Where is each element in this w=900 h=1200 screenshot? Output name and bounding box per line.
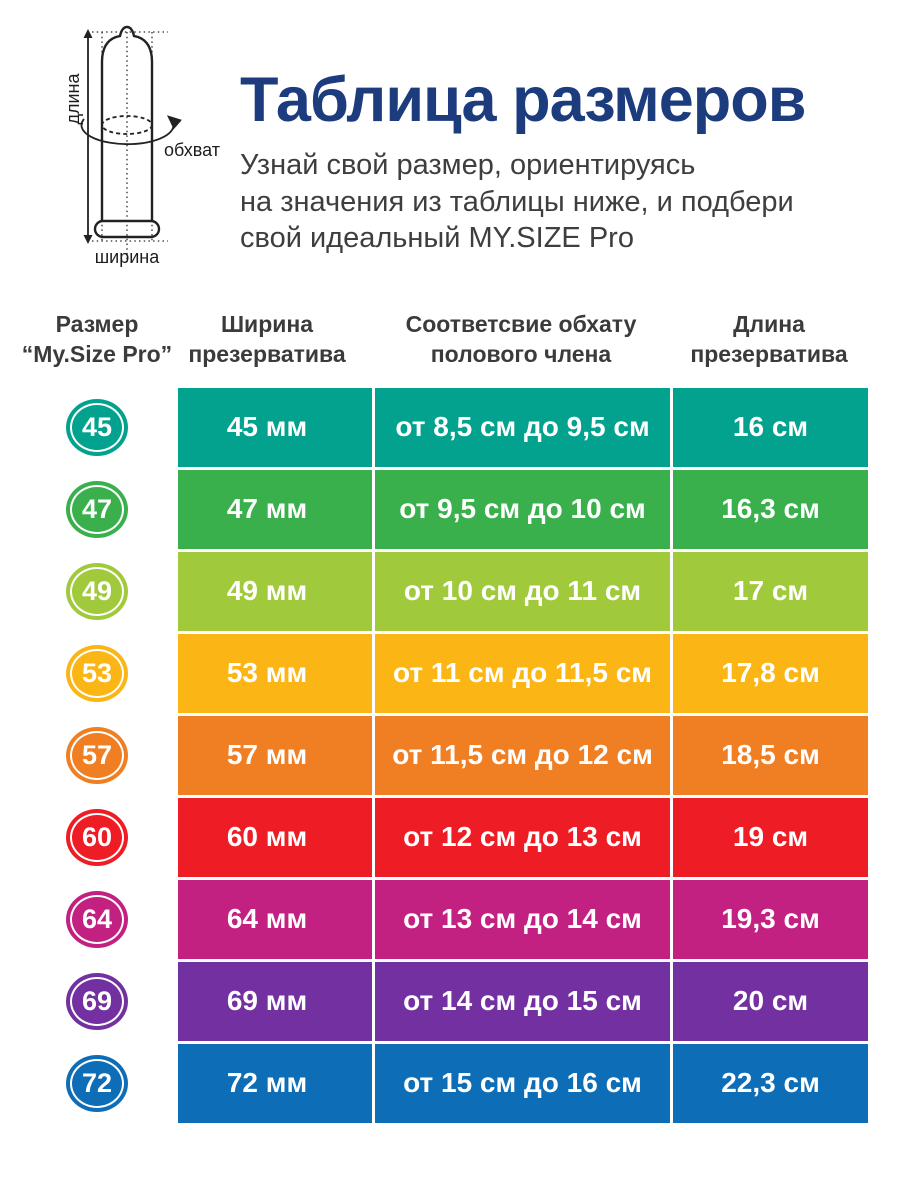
table-row: 53 53 мм от 11 см до 11,5 см 17,8 см	[0, 634, 868, 713]
width-cell: 60 мм	[162, 798, 372, 877]
length-cell: 19,3 см	[670, 880, 868, 959]
girth-cell: от 10 см до 11 см	[372, 552, 670, 631]
width-cell: 49 мм	[162, 552, 372, 631]
size-badge: 69	[66, 973, 128, 1030]
girth-cell: от 15 см до 16 см	[372, 1044, 670, 1123]
table-row: 45 45 мм от 8,5 см до 9,5 см 16 см	[0, 388, 868, 467]
girth-cell: от 9,5 см до 10 см	[372, 470, 670, 549]
column-header-width: Ширина презерватива	[162, 310, 372, 370]
table-row: 60 60 мм от 12 см до 13 см 19 см	[0, 798, 868, 877]
column-header-size: Размер “My.Size Pro”	[16, 310, 178, 370]
width-label: ширина	[95, 247, 161, 267]
length-cell: 18,5 см	[670, 716, 868, 795]
table-row: 69 69 мм от 14 см до 15 см 20 см	[0, 962, 868, 1041]
size-table: Размер “My.Size Pro” Ширина презерватива…	[0, 310, 868, 1126]
girth-cell: от 13 см до 14 см	[372, 880, 670, 959]
girth-cell: от 14 см до 15 см	[372, 962, 670, 1041]
girth-cell: от 12 см до 13 см	[372, 798, 670, 877]
girth-cell: от 8,5 см до 9,5 см	[372, 388, 670, 467]
length-cell: 17 см	[670, 552, 868, 631]
width-cell: 53 мм	[162, 634, 372, 713]
page-title: Таблица размеров	[240, 64, 805, 136]
size-badge: 72	[66, 1055, 128, 1112]
infographic-page: { "hero": { "title": "Таблица размеров",…	[0, 0, 900, 1200]
size-badge: 47	[66, 481, 128, 538]
table-row: 49 49 мм от 10 см до 11 см 17 см	[0, 552, 868, 631]
length-cell: 19 см	[670, 798, 868, 877]
subtitle-line-3: свой идеальный MY.SIZE Pro	[240, 220, 794, 257]
table-row: 57 57 мм от 11,5 см до 12 см 18,5 см	[0, 716, 868, 795]
girth-arrow	[81, 116, 173, 144]
condom-diagram-svg: длина обхват ширина	[52, 22, 237, 282]
girth-cell: от 11,5 см до 12 см	[372, 716, 670, 795]
width-cell: 64 мм	[162, 880, 372, 959]
table-row: 47 47 мм от 9,5 см до 10 см 16,3 см	[0, 470, 868, 549]
length-label: длина	[63, 73, 83, 125]
page-subtitle: Узнай свой размер, ориентируясь на значе…	[240, 147, 794, 257]
width-cell: 45 мм	[162, 388, 372, 467]
length-cell: 16 см	[670, 388, 868, 467]
size-badge: 49	[66, 563, 128, 620]
table-row: 64 64 мм от 13 см до 14 см 19,3 см	[0, 880, 868, 959]
column-header-length: Длина презерватива	[670, 310, 868, 370]
length-cell: 20 см	[670, 962, 868, 1041]
column-header-girth: Соответсвие обхату полового члена	[372, 310, 670, 370]
subtitle-line-1: Узнай свой размер, ориентируясь	[240, 147, 794, 184]
table-header-row: Размер “My.Size Pro” Ширина презерватива…	[0, 310, 868, 370]
width-cell: 69 мм	[162, 962, 372, 1041]
length-cell: 17,8 см	[670, 634, 868, 713]
size-badge: 45	[66, 399, 128, 456]
size-badge: 60	[66, 809, 128, 866]
width-cell: 47 мм	[162, 470, 372, 549]
size-badge: 53	[66, 645, 128, 702]
width-cell: 72 мм	[162, 1044, 372, 1123]
girth-cell: от 11 см до 11,5 см	[372, 634, 670, 713]
size-badge: 64	[66, 891, 128, 948]
length-cell: 16,3 см	[670, 470, 868, 549]
subtitle-line-2: на значения из таблицы ниже, и подбери	[240, 184, 794, 221]
condom-measurement-diagram: длина обхват ширина	[52, 22, 237, 282]
construction-lines-dotted	[92, 32, 168, 262]
size-badge: 57	[66, 727, 128, 784]
table-row: 72 72 мм от 15 см до 16 см 22,3 см	[0, 1044, 868, 1123]
girth-label: обхват	[164, 140, 220, 160]
length-cell: 22,3 см	[670, 1044, 868, 1123]
width-cell: 57 мм	[162, 716, 372, 795]
